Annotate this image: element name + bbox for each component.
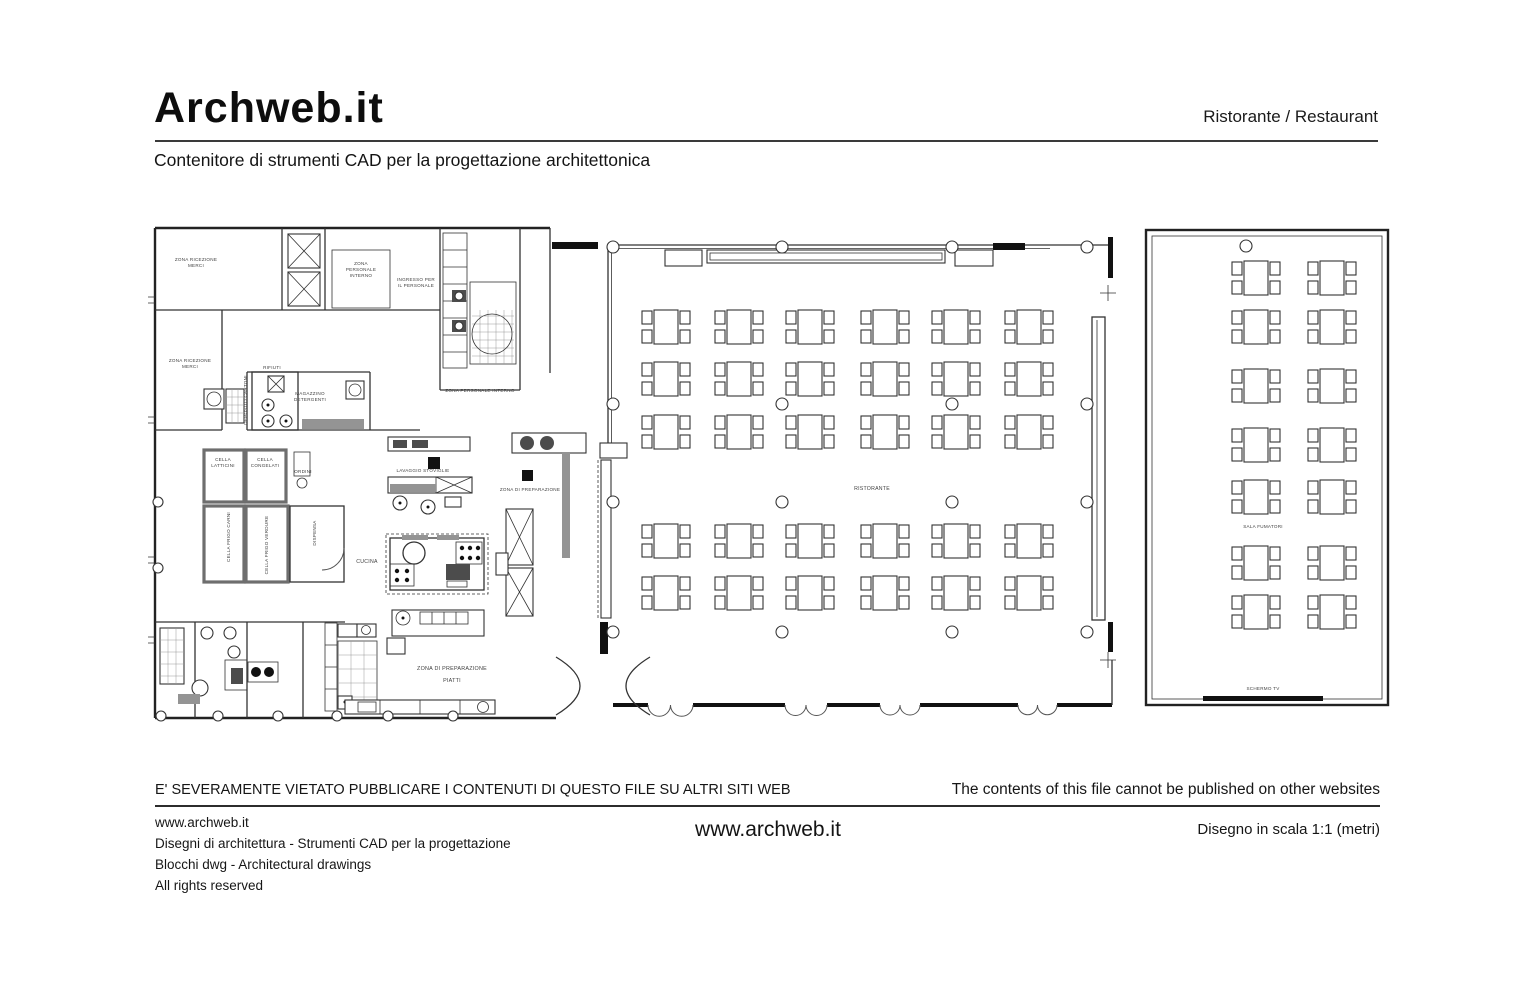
svg-text:DEPOSITO CARTONI: DEPOSITO CARTONI xyxy=(243,375,248,424)
svg-text:LATTICINI: LATTICINI xyxy=(211,463,235,468)
cold-rooms xyxy=(204,450,344,582)
svg-text:PIATTI: PIATTI xyxy=(443,678,461,684)
svg-text:DETERGENTI: DETERGENTI xyxy=(294,397,326,402)
elevators xyxy=(288,234,320,306)
svg-text:ZONA PERSONALE INTERNO: ZONA PERSONALE INTERNO xyxy=(445,388,514,393)
svg-text:ZONA DI PREPARAZIONE: ZONA DI PREPARAZIONE xyxy=(500,487,560,492)
kitchen-equipment xyxy=(386,433,627,654)
dining-walls xyxy=(550,228,1116,705)
svg-text:LAVAGGIO STOVIGLIE: LAVAGGIO STOVIGLIE xyxy=(396,468,449,473)
document-page: Archweb.it Ristorante / Restaurant Conte… xyxy=(0,0,1536,982)
svg-text:SALA FUMATORI: SALA FUMATORI xyxy=(1243,524,1283,529)
scale-note: Disegno in scala 1:1 (metri) xyxy=(1197,821,1380,838)
svg-text:ZONA DI PREPARAZIONE: ZONA DI PREPARAZIONE xyxy=(417,666,487,672)
dining-tables xyxy=(642,310,1053,610)
entrance-vestibule xyxy=(556,622,650,715)
svg-text:DISPENSA: DISPENSA xyxy=(312,520,317,546)
svg-text:ZONA RICEZIONE: ZONA RICEZIONE xyxy=(175,257,217,262)
svg-text:INTERNO: INTERNO xyxy=(350,273,373,278)
waste-room-fixtures xyxy=(204,376,364,429)
buffet-counter xyxy=(665,250,993,266)
svg-text:MAGAZZINO: MAGAZZINO xyxy=(295,391,325,396)
svg-text:PERSONALE: PERSONALE xyxy=(346,267,376,272)
archweb-logo[interactable]: Archweb.it xyxy=(154,84,384,133)
svg-text:MERCI: MERCI xyxy=(182,364,198,369)
page-subtitle: Contenitore di strumenti CAD per la prog… xyxy=(154,150,650,171)
svg-text:RISTORANTE: RISTORANTE xyxy=(854,486,890,492)
copyright-warning: E' SEVERAMENTE VIETATO PUBBLICARE I CONT… xyxy=(155,781,1380,799)
svg-text:INGRESSO PER: INGRESSO PER xyxy=(397,277,435,282)
svg-text:RIFIUTI: RIFIUTI xyxy=(263,365,281,370)
footer-rule xyxy=(155,805,1380,807)
warning-italian: E' SEVERAMENTE VIETATO PUBBLICARE I CONT… xyxy=(155,782,791,798)
svg-text:CONGELATI: CONGELATI xyxy=(251,463,279,468)
svg-text:MERCI: MERCI xyxy=(188,263,204,268)
smoking-tables xyxy=(1232,261,1356,629)
svg-text:CELLA: CELLA xyxy=(215,457,231,462)
svg-text:ZONA: ZONA xyxy=(354,261,368,266)
svg-text:CUCINA: CUCINA xyxy=(356,559,378,565)
outer-walls xyxy=(155,228,1388,718)
svg-text:ZONA RICEZIONE: ZONA RICEZIONE xyxy=(169,358,211,363)
structural-columns xyxy=(153,240,1252,721)
floorplan-svg: ZONA RICEZIONEMERCIZONAPERSONALEINTERNOI… xyxy=(140,215,1400,737)
svg-text:ORDINI: ORDINI xyxy=(294,469,312,474)
category-title: Ristorante / Restaurant xyxy=(1203,107,1378,127)
svg-text:IL PERSONALE: IL PERSONALE xyxy=(398,283,434,288)
svg-text:CELLA FRIGO CARNI: CELLA FRIGO CARNI xyxy=(226,512,231,562)
svg-text:SCHERMO TV: SCHERMO TV xyxy=(1246,686,1280,691)
svg-text:CELLA FRIGO VERDURE: CELLA FRIGO VERDURE xyxy=(264,516,269,575)
footer-line-3: Blocchi dwg - Architectural drawings xyxy=(155,854,511,875)
warning-english: The contents of this file cannot be publ… xyxy=(952,781,1380,799)
svg-text:CELLA: CELLA xyxy=(257,457,273,462)
room-labels: ZONA RICEZIONEMERCIZONAPERSONALEINTERNOI… xyxy=(169,257,1283,691)
footer-line-4: All rights reserved xyxy=(155,875,511,896)
header-rule xyxy=(155,140,1378,142)
tv-screen xyxy=(1203,696,1323,701)
